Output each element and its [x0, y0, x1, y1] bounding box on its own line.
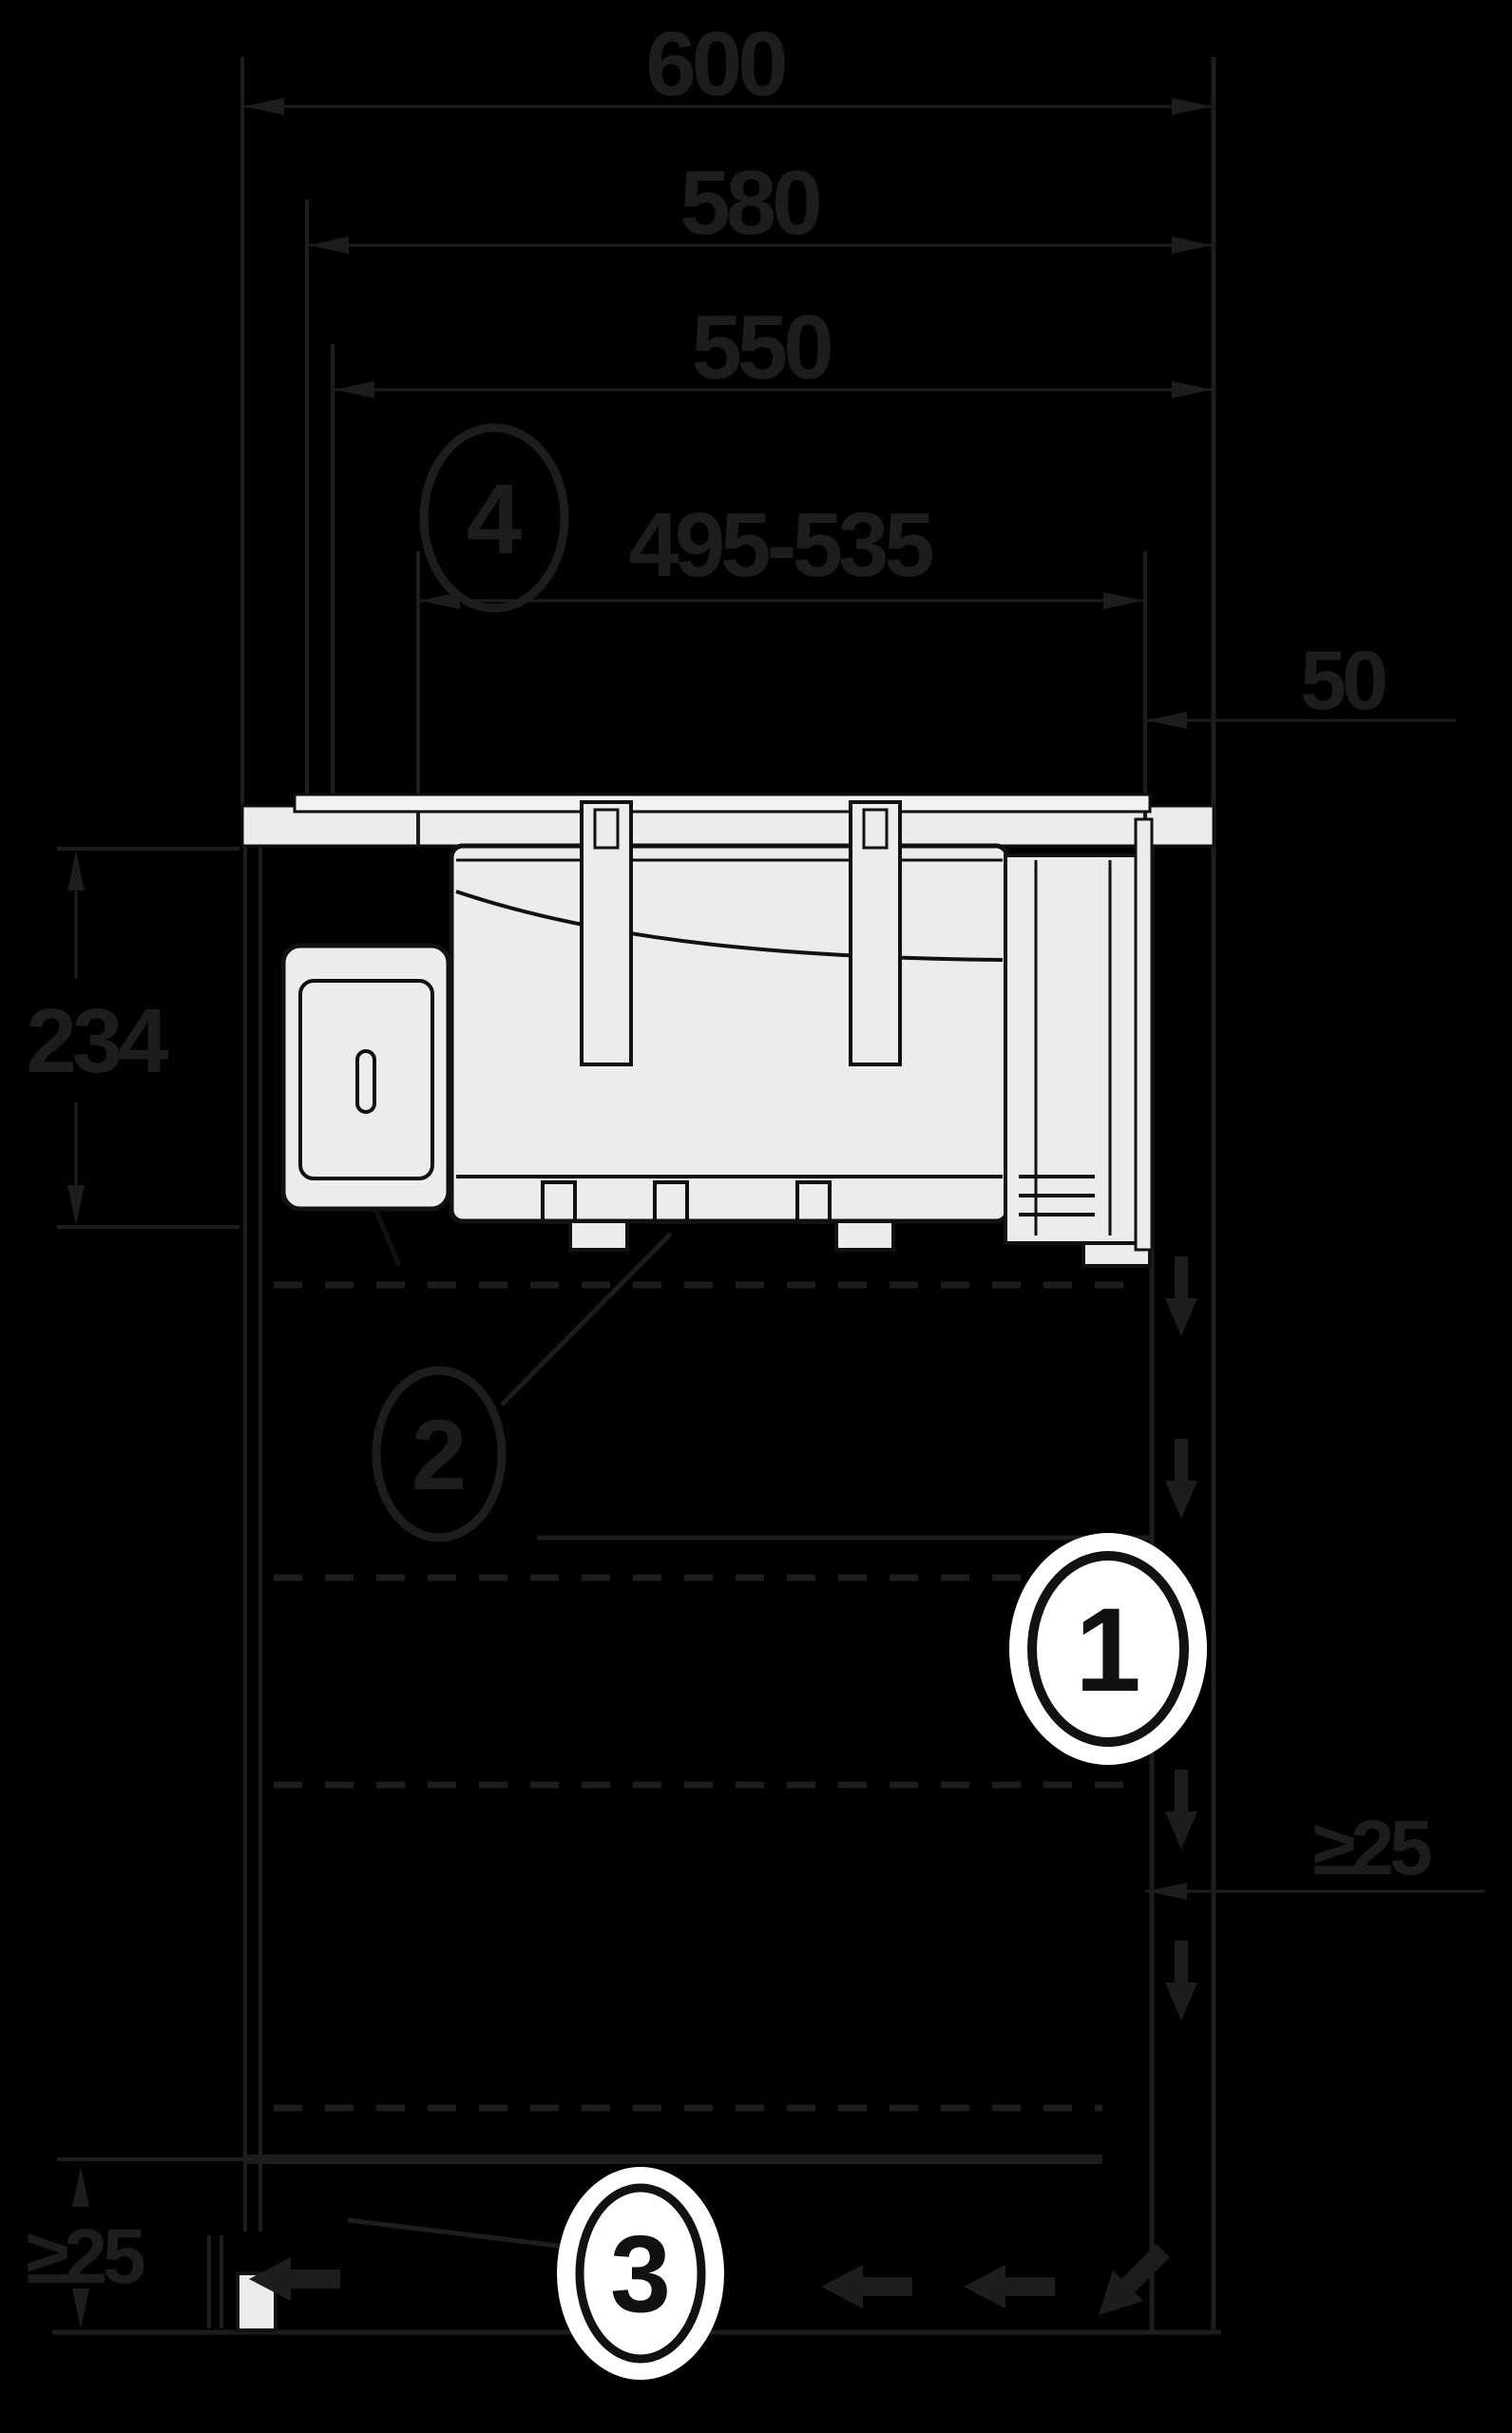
dimension-rear-50: 50: [1145, 633, 1456, 729]
callout-4: 4: [424, 428, 565, 608]
callout-2: 2: [376, 1370, 502, 1538]
dimension-cutout-495-535: 495-535: [418, 494, 1145, 609]
dimension-height-234: 234: [26, 851, 168, 1225]
airflow-diagonal-arrow-icon: [1099, 2244, 1170, 2315]
callout-4-number: 4: [467, 464, 522, 575]
clearance-right-label: ≥25: [1312, 1805, 1431, 1891]
exhaust-duct: [1005, 819, 1152, 1266]
airflow-down-arrow-icon: [1165, 1439, 1197, 1519]
leader-line-callout-3: [348, 2220, 582, 2249]
left-connector-box: [283, 946, 449, 1266]
clearance-right-25: ≥25: [1145, 1805, 1484, 1900]
airflow-down-arrow-icon: [1165, 1770, 1197, 1849]
plinth-panel: [209, 2235, 221, 2328]
dimension-550-label: 550: [691, 297, 831, 398]
hob-glass: [295, 795, 1150, 812]
dimension-600: 600: [242, 13, 1214, 115]
clearance-bottom-label: ≥25: [26, 2213, 144, 2300]
clearance-bottom-25: ≥25: [26, 2167, 144, 2328]
dimension-580: 580: [307, 152, 1214, 254]
airflow-left-arrow-icon: [964, 2265, 1055, 2308]
mounting-bracket: [582, 802, 631, 1064]
dimension-600-label: 600: [645, 13, 785, 115]
leader-line-callout-2: [502, 1234, 671, 1405]
cabinet-left-panel: [245, 846, 260, 2232]
callout-3: 3: [557, 2167, 724, 2380]
callout-2-number: 2: [411, 1400, 467, 1511]
callout-3-number: 3: [610, 2213, 671, 2335]
airflow-down-arrow-icon: [1165, 1256, 1197, 1336]
airflow-left-arrow-icon: [821, 2265, 912, 2308]
callout-1: 1: [1009, 1533, 1207, 1765]
shelf-dashed-lines: [274, 1285, 1145, 2108]
dimension-580-label: 580: [679, 152, 819, 254]
installation-diagram: 600 580 550 495-535 50 234 ≥25: [0, 0, 1512, 2433]
dimension-50-label: 50: [1300, 633, 1386, 727]
mounting-bracket: [851, 802, 900, 1064]
airflow-down-arrow-icon: [1165, 1941, 1197, 2021]
appliance-body: [451, 846, 1007, 1221]
diagram-canvas: 600 580 550 495-535 50 234 ≥25: [0, 0, 1512, 2433]
callout-1-number: 1: [1075, 1584, 1141, 1716]
dimension-cutout-label: 495-535: [628, 494, 932, 596]
appliance: [283, 802, 1152, 1266]
dimension-550: 550: [333, 297, 1214, 398]
dimension-234-label: 234: [26, 990, 168, 1092]
